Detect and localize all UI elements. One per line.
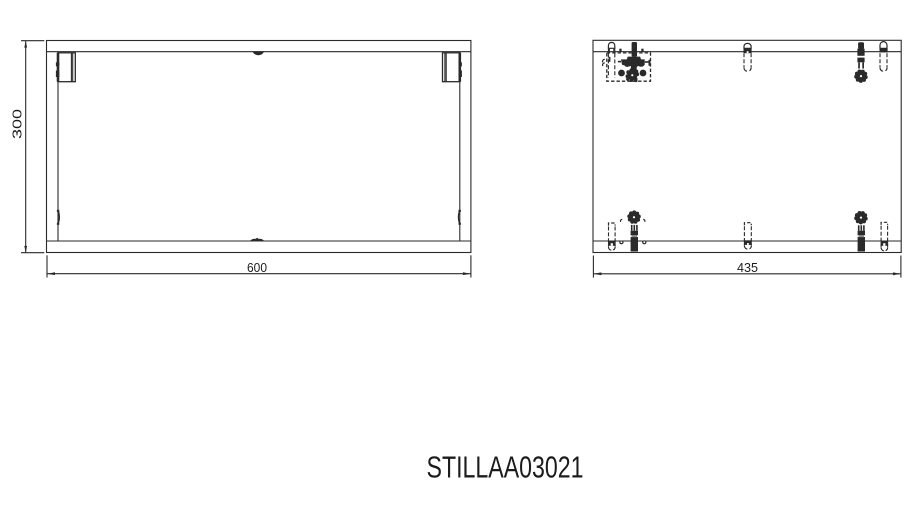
svg-text:435: 435 xyxy=(737,260,758,275)
svg-text:300: 300 xyxy=(10,109,25,139)
svg-text:600: 600 xyxy=(247,260,267,275)
svg-text:STILLAA03021: STILLAA03021 xyxy=(427,450,584,485)
